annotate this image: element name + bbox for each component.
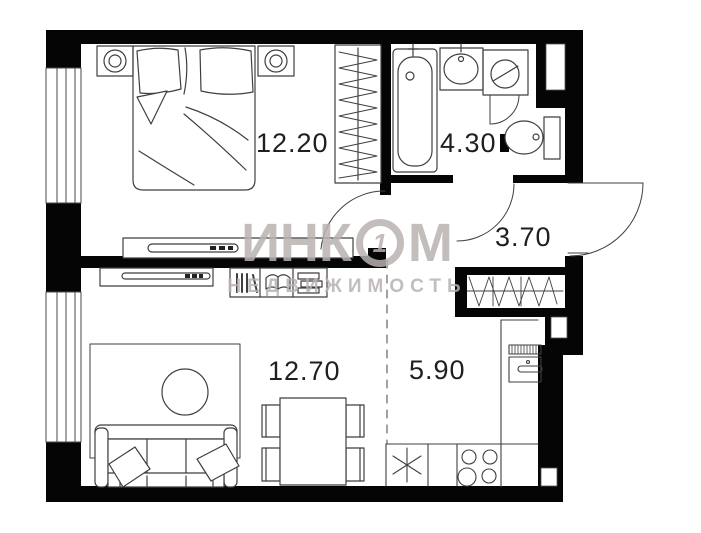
tv-controls — [210, 246, 233, 250]
floor-plan: 12.20 4.30 3.70 12.70 5.90 ИНК 1 М НЕДВИ… — [0, 0, 701, 533]
wall-wardrobe-bottom — [455, 308, 565, 317]
area-label-kitchen: 5.90 — [409, 355, 466, 386]
coffee-table — [162, 369, 208, 415]
wall-bottom — [46, 486, 563, 502]
window-bedroom — [46, 68, 81, 203]
chair — [346, 405, 364, 437]
kitchen-sink-icon — [393, 448, 421, 482]
double-bed — [133, 46, 255, 190]
oven — [509, 345, 542, 382]
pillow-left — [137, 48, 181, 93]
wall-bathroom-bottom-left — [391, 175, 453, 183]
nightstand-right — [258, 46, 294, 76]
wall-wardrobe-top — [455, 267, 565, 275]
wall-right-upper — [565, 30, 583, 183]
pillow-right — [200, 48, 253, 95]
entrance-door-swing — [570, 183, 643, 256]
tv-cabinet-living — [100, 268, 213, 286]
entry-wardrobe — [467, 277, 563, 306]
toilet — [500, 117, 560, 159]
cabinet-door-swing — [490, 95, 519, 124]
shaft-niche-bottom-wall — [536, 90, 566, 108]
entrance-door — [568, 183, 643, 256]
area-label-bathroom: 4.30 — [440, 128, 497, 159]
wall-notch-bottom — [541, 468, 557, 486]
chair — [346, 448, 364, 481]
chair — [262, 405, 280, 437]
window-living-room — [46, 292, 81, 442]
shelf-unit — [230, 268, 327, 297]
area-label-hallway: 3.70 — [495, 222, 552, 253]
shaft-niche — [546, 44, 565, 90]
tv-controls-living — [185, 274, 203, 278]
wall-left-upper — [46, 30, 81, 68]
bedroom-wardrobe — [335, 45, 381, 183]
dining-set — [262, 398, 364, 485]
dining-table — [280, 398, 346, 485]
hallway-elements — [467, 183, 643, 306]
bedroom-furniture — [97, 45, 385, 258]
area-label-bedroom: 12.20 — [256, 128, 329, 159]
bathtub — [393, 44, 437, 172]
bathroom-sink — [440, 44, 483, 90]
wall-bathroom-left — [380, 30, 391, 195]
wall-notch-middle — [551, 317, 567, 338]
wall-top — [46, 30, 583, 44]
chair — [262, 448, 280, 481]
cooktop — [458, 450, 497, 486]
nightstand-left — [97, 46, 133, 76]
sofa — [95, 425, 239, 487]
wall-left-middle — [46, 203, 81, 292]
wall-partition-stub — [368, 248, 386, 256]
area-label-living-room: 12.70 — [268, 356, 341, 387]
wall-bathroom-bottom-right — [513, 175, 565, 183]
tv-console-bedroom — [123, 238, 353, 258]
washing-machine — [483, 50, 528, 95]
floor-plan-drawing — [0, 0, 701, 533]
blanket-fold — [137, 91, 167, 124]
